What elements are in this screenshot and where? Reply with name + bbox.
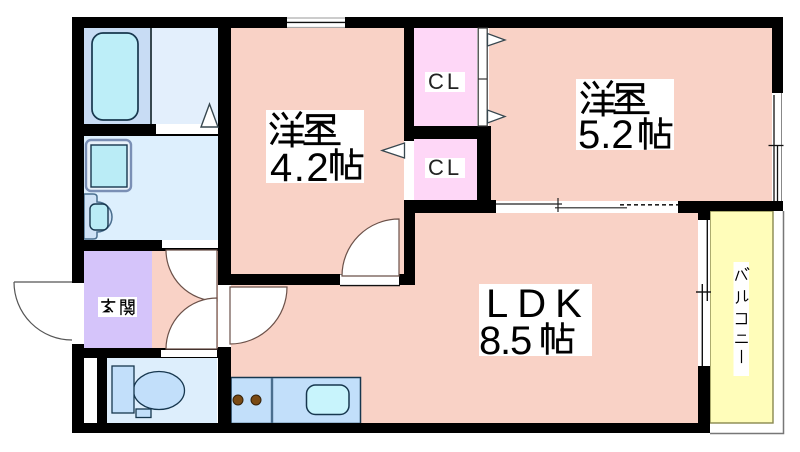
svg-text:5.2: 5.2: [578, 113, 634, 157]
svg-text:8.5: 8.5: [479, 319, 531, 363]
svg-text:CL: CL: [428, 69, 462, 94]
svg-text:4.2: 4.2: [270, 146, 330, 190]
svg-text:CL: CL: [428, 155, 462, 180]
